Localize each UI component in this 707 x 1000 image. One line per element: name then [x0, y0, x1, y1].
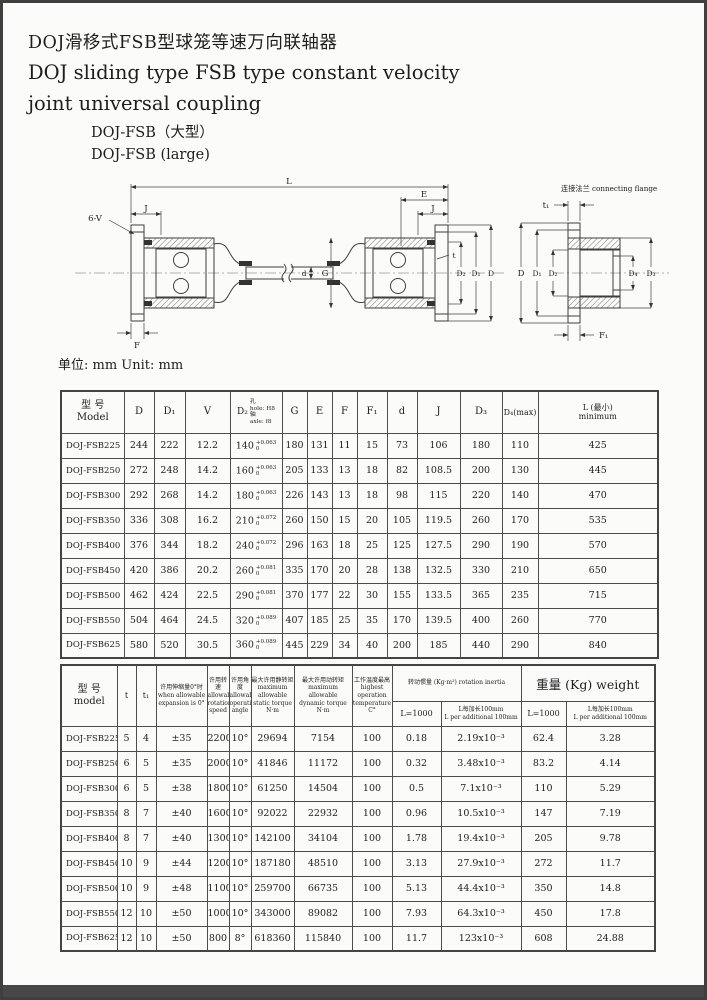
value-cell: 73 [387, 433, 417, 458]
value-cell: 1800 [207, 776, 229, 801]
value-cell: 115 [417, 483, 460, 508]
value-cell: 1.78 [392, 826, 441, 851]
value-cell: 335 [282, 558, 307, 583]
value-cell: 9 [136, 876, 156, 901]
performance-row: DOJ-FSB500109±48110010°259700667351005.1… [61, 876, 655, 901]
dim-label-D4: D₄ [628, 269, 637, 278]
value-cell: 17.8 [566, 901, 655, 926]
value-cell: 462 [124, 583, 154, 608]
col-header-speed: 许用转速 allowable rotation speed [207, 665, 229, 726]
value-cell: ±35 [156, 751, 207, 776]
value-cell: 7.19 [566, 801, 655, 826]
value-cell: 445 [282, 633, 307, 658]
col-header-D4max: D₄(max) [502, 391, 538, 433]
value-cell: 5.29 [566, 776, 655, 801]
dim-label-d: d [302, 269, 307, 278]
value-cell: 10.5x10⁻³ [441, 801, 521, 826]
performance-table: 型 号 model t t₁ 许用伸缩量0°时 when allowable e… [60, 664, 656, 952]
value-cell: 82 [387, 458, 417, 483]
value-cell: 4.14 [566, 751, 655, 776]
value-cell: 386 [154, 558, 185, 583]
value-cell: 7154 [294, 726, 352, 751]
value-cell: 259700 [251, 876, 294, 901]
value-cell: 3.28 [566, 726, 655, 751]
value-cell: 18.2 [185, 533, 230, 558]
model-cell: DOJ-FSB225 [61, 433, 124, 458]
col-header-t1: t₁ [136, 665, 156, 726]
col-header-inertia-L1000: L=1000 [392, 701, 441, 726]
value-cell: 24.5 [185, 608, 230, 633]
value-cell: 248 [154, 458, 185, 483]
coupling-technical-drawing: L E J J 6-V d G t D₂ D₁ D F 连接法兰 connect… [25, 171, 687, 365]
value-cell: 770 [538, 608, 658, 633]
value-cell: 170 [307, 558, 332, 583]
value-cell: 440 [460, 633, 502, 658]
performance-row: DOJ-FSB5501210±50100010°343000890821007.… [61, 901, 655, 926]
model-cell: DOJ-FSB450 [61, 558, 124, 583]
value-cell: 19.4x10⁻³ [441, 826, 521, 851]
value-cell: 127.5 [417, 533, 460, 558]
model-cell: DOJ-FSB350 [61, 508, 124, 533]
col-header-weight-L1000: L=1000 [521, 701, 566, 726]
value-cell: 268 [154, 483, 185, 508]
bore-tolerance-cell: 320+0.0890 [230, 608, 282, 633]
value-cell: 330 [460, 558, 502, 583]
value-cell: 18 [357, 483, 387, 508]
value-cell: 48510 [294, 851, 352, 876]
value-cell: 177 [307, 583, 332, 608]
value-cell: 25 [357, 533, 387, 558]
value-cell: 11 [332, 433, 357, 458]
col-header-temperature: 工作温度最高 highest operation temperature C° [352, 665, 392, 726]
dim-label-L: L [286, 177, 292, 187]
value-cell: ±40 [156, 801, 207, 826]
value-cell: 608 [521, 926, 566, 951]
col-header-V: V [185, 391, 230, 433]
value-cell: 20 [332, 558, 357, 583]
value-cell: 200 [387, 633, 417, 658]
value-cell: ±50 [156, 901, 207, 926]
value-cell: 1300 [207, 826, 229, 851]
value-cell: 150 [307, 508, 332, 533]
performance-row: DOJ-FSB35087±40160010°92022229321000.961… [61, 801, 655, 826]
dimension-row: DOJ-FSB55050446424.5320+0.08904071852535… [61, 608, 658, 633]
value-cell: 464 [154, 608, 185, 633]
value-cell: 210 [502, 558, 538, 583]
value-cell: 11.7 [392, 926, 441, 951]
bore-tolerance-cell: 210+0.0720 [230, 508, 282, 533]
col-header-weight-per100: L每加长100mm L per additional 100mm [566, 701, 655, 726]
dim-label-F: F [134, 341, 140, 351]
value-cell: 260 [460, 508, 502, 533]
value-cell: 1600 [207, 801, 229, 826]
col-header-E: E [307, 391, 332, 433]
value-cell: 185 [307, 608, 332, 633]
value-cell: 7.93 [392, 901, 441, 926]
value-cell: 296 [282, 533, 307, 558]
value-cell: 5 [117, 726, 136, 751]
value-cell: 0.96 [392, 801, 441, 826]
value-cell: 10 [136, 901, 156, 926]
value-cell: 8 [117, 826, 136, 851]
performance-row: DOJ-FSB25065±35200010°41846111721000.323… [61, 751, 655, 776]
value-cell: 205 [521, 826, 566, 851]
value-cell: 143 [307, 483, 332, 508]
value-cell: 229 [307, 633, 332, 658]
dim-label-t: t [452, 251, 455, 260]
value-cell: 618360 [251, 926, 294, 951]
performance-row: DOJ-FSB450109±44120010°187180485101003.1… [61, 851, 655, 876]
unit-note: 单位: mm Unit: mm [58, 354, 183, 373]
value-cell: 100 [352, 726, 392, 751]
value-cell: 650 [538, 558, 658, 583]
value-cell: 98 [387, 483, 417, 508]
value-cell: 10° [229, 726, 251, 751]
value-cell: 100 [352, 876, 392, 901]
value-cell: 100 [352, 851, 392, 876]
dim-label-J-right: J [430, 204, 435, 214]
page-title-en: DOJ sliding type FSB type constant veloc… [28, 57, 459, 119]
performance-row: DOJ-FSB22554±35220010°2969471541000.182.… [61, 726, 655, 751]
scan-edge-band [3, 985, 704, 997]
model-cell: DOJ-FSB550 [61, 608, 124, 633]
value-cell: 28 [357, 558, 387, 583]
bore-tolerance-cell: 260+0.0810 [230, 558, 282, 583]
value-cell: 344 [154, 533, 185, 558]
performance-row: DOJ-FSB6251210±508008°61836011584010011.… [61, 926, 655, 951]
value-cell: 1000 [207, 901, 229, 926]
col-header-t: t [117, 665, 136, 726]
col-header-J: J [417, 391, 460, 433]
value-cell: ±48 [156, 876, 207, 901]
dim-label-t1: t₁ [543, 201, 550, 211]
value-cell: 142100 [251, 826, 294, 851]
value-cell: 10° [229, 826, 251, 851]
value-cell: ±44 [156, 851, 207, 876]
value-cell: 133.5 [417, 583, 460, 608]
value-cell: 64.3x10⁻³ [441, 901, 521, 926]
model-cell: DOJ-FSB350 [61, 801, 117, 826]
value-cell: 108.5 [417, 458, 460, 483]
value-cell: 190 [502, 533, 538, 558]
value-cell: 272 [521, 851, 566, 876]
value-cell: 5 [136, 751, 156, 776]
dim-label-D3: D₃ [646, 269, 655, 278]
value-cell: ±50 [156, 926, 207, 951]
value-cell: 400 [460, 608, 502, 633]
value-cell: 235 [502, 583, 538, 608]
value-cell: 10° [229, 801, 251, 826]
value-cell: 3.13 [392, 851, 441, 876]
value-cell: 5 [136, 776, 156, 801]
col-header-inertia-per100: L每加长100mm L per additional 100mm [441, 701, 521, 726]
value-cell: 131 [307, 433, 332, 458]
value-cell: 20.2 [185, 558, 230, 583]
value-cell: 7 [136, 826, 156, 851]
model-cell: DOJ-FSB400 [61, 826, 117, 851]
value-cell: 22.5 [185, 583, 230, 608]
col-header-model: 型 号 model [61, 665, 117, 726]
value-cell: 2.19x10⁻³ [441, 726, 521, 751]
value-cell: 83.2 [521, 751, 566, 776]
bore-tolerance-cell: 160+0.0630 [230, 458, 282, 483]
bore-tolerance-cell: 180+0.0630 [230, 483, 282, 508]
value-cell: ±38 [156, 776, 207, 801]
value-cell: 62.4 [521, 726, 566, 751]
value-cell: 100 [352, 901, 392, 926]
col-header-F: F [332, 391, 357, 433]
value-cell: 205 [282, 458, 307, 483]
col-header-G: G [282, 391, 307, 433]
value-cell: 11.7 [566, 851, 655, 876]
value-cell: 40 [357, 633, 387, 658]
performance-row: DOJ-FSB40087±40130010°142100341041001.78… [61, 826, 655, 851]
value-cell: 14.2 [185, 458, 230, 483]
dimension-row: DOJ-FSB45042038620.2260+0.08103351702028… [61, 558, 658, 583]
value-cell: 7.1x10⁻³ [441, 776, 521, 801]
model-cell: DOJ-FSB450 [61, 851, 117, 876]
dim-label-D1-sec: D₁ [532, 269, 541, 278]
value-cell: 100 [352, 776, 392, 801]
dimension-row: DOJ-FSB25027224814.2160+0.06302051331318… [61, 458, 658, 483]
value-cell: 30.5 [185, 633, 230, 658]
value-cell: 18 [332, 533, 357, 558]
value-cell: 3.48x10⁻³ [441, 751, 521, 776]
value-cell: 1200 [207, 851, 229, 876]
flange-caption: 连接法兰 connecting flange [561, 184, 657, 193]
value-cell: 14504 [294, 776, 352, 801]
col-header-D: D [124, 391, 154, 433]
value-cell: 66735 [294, 876, 352, 901]
value-cell: 11172 [294, 751, 352, 776]
value-cell: 800 [207, 926, 229, 951]
dim-label-F1: F₁ [599, 331, 608, 341]
value-cell: 292 [124, 483, 154, 508]
col-header-model: 型 号 Model [61, 391, 124, 433]
bore-tolerance-cell: 240+0.0720 [230, 533, 282, 558]
value-cell: 290 [460, 533, 502, 558]
value-cell: 15 [332, 508, 357, 533]
value-cell: 14.2 [185, 483, 230, 508]
dim-label-6V: 6-V [88, 214, 103, 224]
value-cell: 715 [538, 583, 658, 608]
bore-tolerance-cell: 360+0.0890 [230, 633, 282, 658]
value-cell: 260 [502, 608, 538, 633]
dim-label-D1-main: D₁ [471, 269, 480, 278]
value-cell: 180 [460, 433, 502, 458]
value-cell: 30 [357, 583, 387, 608]
model-subtitle: DOJ-FSB（大型） DOJ-FSB (large) [91, 122, 214, 166]
dimension-row: DOJ-FSB40037634418.2240+0.07202961631825… [61, 533, 658, 558]
performance-row: DOJ-FSB30065±38180010°61250145041000.57.… [61, 776, 655, 801]
value-cell: 25 [332, 608, 357, 633]
value-cell: 10° [229, 776, 251, 801]
value-cell: 222 [154, 433, 185, 458]
value-cell: ±35 [156, 726, 207, 751]
value-cell: 110 [502, 433, 538, 458]
model-cell: DOJ-FSB250 [61, 751, 117, 776]
value-cell: 220 [460, 483, 502, 508]
value-cell: ±40 [156, 826, 207, 851]
value-cell: 140 [502, 483, 538, 508]
drawing-container: L E J J 6-V d G t D₂ D₁ D F 连接法兰 connect… [25, 171, 687, 365]
col-header-static-torque: 最大许用静转矩 maximum allowable static torque … [251, 665, 294, 726]
value-cell: 370 [282, 583, 307, 608]
value-cell: 450 [521, 901, 566, 926]
value-cell: 155 [387, 583, 417, 608]
value-cell: 147 [521, 801, 566, 826]
value-cell: 180 [282, 433, 307, 458]
value-cell: 4 [136, 726, 156, 751]
model-cell: DOJ-FSB625 [61, 633, 124, 658]
value-cell: 425 [538, 433, 658, 458]
value-cell: 132.5 [417, 558, 460, 583]
value-cell: 12 [117, 901, 136, 926]
value-cell: 2000 [207, 751, 229, 776]
dim-label-G: G [322, 269, 329, 279]
value-cell: 1100 [207, 876, 229, 901]
value-cell: 260 [282, 508, 307, 533]
col-header-angle: 许用角度 allowable operation angle [229, 665, 251, 726]
value-cell: 535 [538, 508, 658, 533]
value-cell: 163 [307, 533, 332, 558]
value-cell: 100 [352, 751, 392, 776]
value-cell: 119.5 [417, 508, 460, 533]
dimension-row: DOJ-FSB62558052030.5360+0.08904452293440… [61, 633, 658, 658]
value-cell: 10° [229, 876, 251, 901]
value-cell: 470 [538, 483, 658, 508]
dim-label-D2-sec: D₂ [548, 269, 557, 278]
value-cell: 10 [136, 926, 156, 951]
value-cell: 100 [352, 801, 392, 826]
value-cell: 200 [460, 458, 502, 483]
catalog-page: DOJ滑移式FSB型球笼等速万向联轴器 DOJ sliding type FSB… [0, 0, 707, 1000]
value-cell: 92022 [251, 801, 294, 826]
value-cell: 10° [229, 851, 251, 876]
value-cell: 350 [521, 876, 566, 901]
value-cell: 130 [502, 458, 538, 483]
value-cell: 41846 [251, 751, 294, 776]
value-cell: 365 [460, 583, 502, 608]
value-cell: 580 [124, 633, 154, 658]
dimension-row: DOJ-FSB50046242422.5290+0.08103701772230… [61, 583, 658, 608]
value-cell: 115840 [294, 926, 352, 951]
value-cell: 9.78 [566, 826, 655, 851]
value-cell: 110 [521, 776, 566, 801]
value-cell: 14.8 [566, 876, 655, 901]
value-cell: 24.88 [566, 926, 655, 951]
value-cell: 89082 [294, 901, 352, 926]
value-cell: 61250 [251, 776, 294, 801]
value-cell: 290 [502, 633, 538, 658]
value-cell: 20 [357, 508, 387, 533]
model-cell: DOJ-FSB300 [61, 483, 124, 508]
value-cell: 35 [357, 608, 387, 633]
value-cell: 44.4x10⁻³ [441, 876, 521, 901]
value-cell: 10 [117, 876, 136, 901]
model-cell: DOJ-FSB225 [61, 726, 117, 751]
value-cell: 0.32 [392, 751, 441, 776]
value-cell: 308 [154, 508, 185, 533]
value-cell: 6 [117, 751, 136, 776]
value-cell: 424 [154, 583, 185, 608]
value-cell: 504 [124, 608, 154, 633]
col-header-F1: F₁ [357, 391, 387, 433]
dimension-row: DOJ-FSB30029226814.2180+0.06302261431318… [61, 483, 658, 508]
value-cell: 9 [136, 851, 156, 876]
value-cell: 185 [417, 633, 460, 658]
value-cell: 445 [538, 458, 658, 483]
value-cell: 12.2 [185, 433, 230, 458]
value-cell: 18 [357, 458, 387, 483]
bore-tolerance-cell: 290+0.0810 [230, 583, 282, 608]
value-cell: 8° [229, 926, 251, 951]
value-cell: 10 [117, 851, 136, 876]
value-cell: 407 [282, 608, 307, 633]
d2-fit-note: 孔 hole: H8 轴 axle: f8 [250, 399, 275, 425]
value-cell: 244 [124, 433, 154, 458]
group-header-weight: 重量 (Kg) weight [521, 665, 655, 701]
col-header-D1: D₁ [154, 391, 185, 433]
d2-symbol: D₂ [237, 407, 248, 417]
model-cell: DOJ-FSB500 [61, 876, 117, 901]
value-cell: 2200 [207, 726, 229, 751]
value-cell: 133 [307, 458, 332, 483]
col-header-expansion: 许用伸缩量0°时 when allowable expansion is 0° [156, 665, 207, 726]
value-cell: 10° [229, 751, 251, 776]
value-cell: 6 [117, 776, 136, 801]
value-cell: 15 [357, 433, 387, 458]
dimension-row: DOJ-FSB22524422212.2140+0.06301801311115… [61, 433, 658, 458]
value-cell: 13 [332, 458, 357, 483]
value-cell: 5.13 [392, 876, 441, 901]
dim-label-D-main: D [488, 269, 494, 278]
value-cell: 13 [332, 483, 357, 508]
value-cell: 125 [387, 533, 417, 558]
value-cell: 7 [136, 801, 156, 826]
value-cell: 226 [282, 483, 307, 508]
model-cell: DOJ-FSB500 [61, 583, 124, 608]
value-cell: 27.9x10⁻³ [441, 851, 521, 876]
value-cell: 336 [124, 508, 154, 533]
value-cell: 34104 [294, 826, 352, 851]
value-cell: 343000 [251, 901, 294, 926]
dim-label-J-left: J [143, 204, 148, 214]
col-header-D2-bore: D₂ 孔 hole: H8 轴 axle: f8 [230, 391, 282, 433]
value-cell: 29694 [251, 726, 294, 751]
value-cell: 100 [352, 926, 392, 951]
col-header-d: d [387, 391, 417, 433]
value-cell: 34 [332, 633, 357, 658]
value-cell: 840 [538, 633, 658, 658]
value-cell: 106 [417, 433, 460, 458]
model-cell: DOJ-FSB400 [61, 533, 124, 558]
value-cell: 138 [387, 558, 417, 583]
value-cell: 123x10⁻³ [441, 926, 521, 951]
value-cell: 12 [117, 926, 136, 951]
value-cell: 100 [352, 826, 392, 851]
value-cell: 170 [502, 508, 538, 533]
value-cell: 170 [387, 608, 417, 633]
dim-label-E: E [421, 190, 427, 200]
value-cell: 16.2 [185, 508, 230, 533]
model-cell: DOJ-FSB300 [61, 776, 117, 801]
value-cell: 376 [124, 533, 154, 558]
value-cell: 22 [332, 583, 357, 608]
value-cell: 420 [124, 558, 154, 583]
value-cell: 0.5 [392, 776, 441, 801]
value-cell: 0.18 [392, 726, 441, 751]
